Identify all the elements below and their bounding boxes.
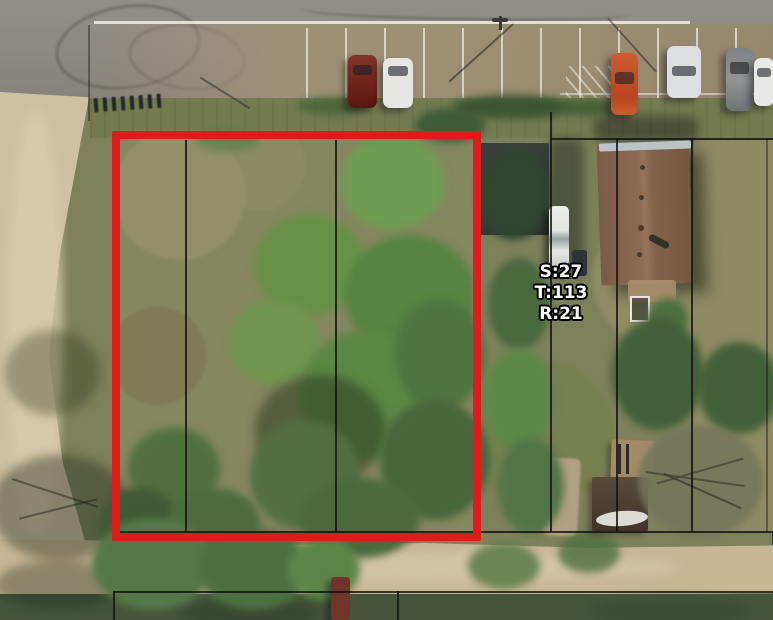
tree-shadow <box>5 330 100 415</box>
windshield <box>672 66 695 76</box>
field-shadow <box>590 598 750 620</box>
parcel-boundary-line <box>113 591 115 620</box>
range-label: R:21 <box>511 304 611 325</box>
parked-car-gray <box>726 48 753 111</box>
parked-car-darkred <box>348 55 377 108</box>
windshield <box>388 66 408 76</box>
parked-car-white-edge <box>754 58 773 106</box>
truck-on-south-road <box>331 577 350 620</box>
tree <box>468 543 540 589</box>
brown-roof-house <box>597 142 694 285</box>
parcel-boundary-line <box>397 591 399 620</box>
parcel-boundary-line <box>616 138 618 532</box>
tree <box>483 348 555 450</box>
parcel-boundary-line <box>113 591 773 593</box>
shed-door-line <box>626 444 629 474</box>
light-pole <box>499 16 502 30</box>
parcel-boundary-line <box>551 138 773 140</box>
windshield <box>615 72 633 84</box>
white-pickup-truck <box>549 206 569 266</box>
parked-car-orange <box>611 53 638 115</box>
selected-parcel-outline[interactable] <box>112 131 481 541</box>
roof-vent <box>637 252 642 257</box>
parked-car-white <box>383 58 413 108</box>
township-label: T:113 <box>511 283 611 304</box>
parked-van-white <box>667 46 701 98</box>
tree <box>698 342 773 434</box>
windshield <box>730 62 748 75</box>
windshield <box>757 68 771 78</box>
bare-tree <box>638 425 763 537</box>
pole-shadow <box>88 25 90 121</box>
parcel-boundary-line <box>691 138 693 532</box>
tree <box>498 438 564 534</box>
aerial-map[interactable]: S:27 T:113 R:21 <box>0 0 773 620</box>
hedge <box>452 95 574 119</box>
tree <box>558 533 620 573</box>
windshield <box>353 65 373 76</box>
road-edge-line <box>94 21 690 24</box>
section-township-range-label: S:27 T:113 R:21 <box>511 262 611 325</box>
parcel-boundary-line <box>766 138 768 532</box>
section-label: S:27 <box>511 262 611 283</box>
hot-tub <box>630 296 650 322</box>
shed-door-line <box>618 444 621 474</box>
roof-vent <box>640 165 645 170</box>
roof-vent <box>639 195 644 200</box>
roof-vent <box>638 225 644 231</box>
tree <box>478 148 550 240</box>
